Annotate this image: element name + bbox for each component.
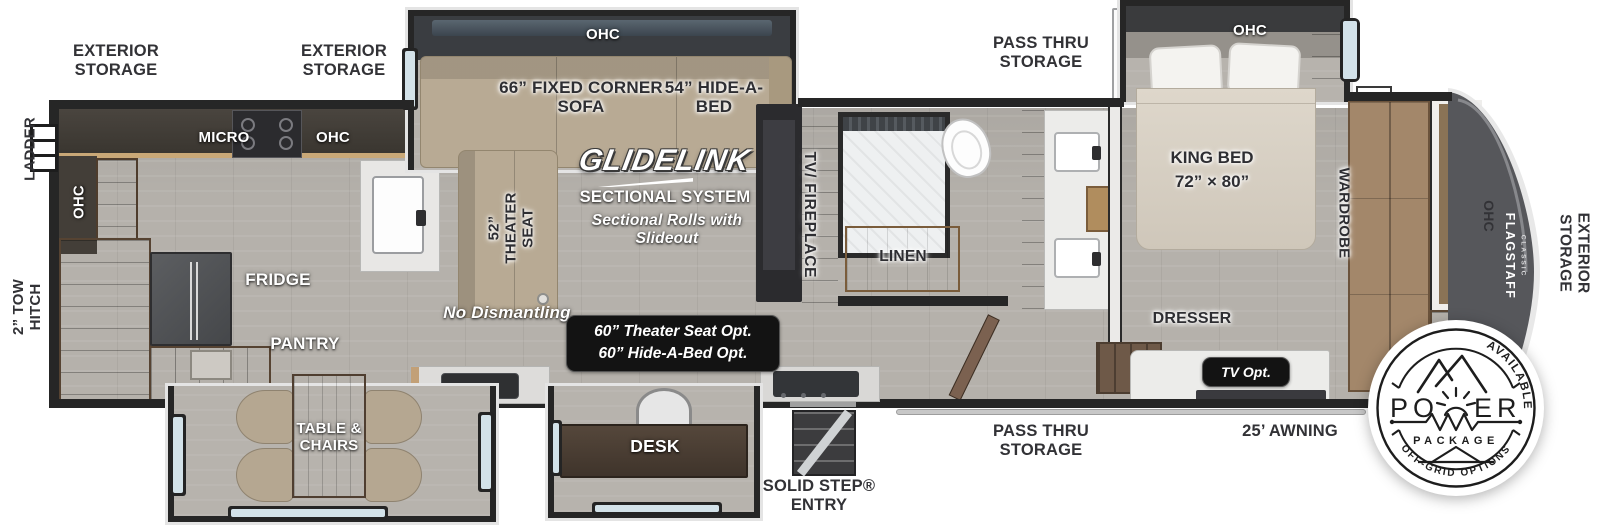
ohc-cabinet-left (96, 158, 138, 240)
dinette-bench (364, 448, 422, 502)
flagstaff-logo: FLAGSTAFF (1503, 213, 1517, 300)
vanity-shelves (1022, 110, 1044, 310)
option-line-1: 60” Theater Seat Opt. (575, 321, 771, 343)
dinette-window-left (170, 414, 186, 496)
desk-label: DESK (600, 437, 710, 457)
fridge-handle (196, 262, 198, 340)
package-text: PACKAGE (1413, 435, 1499, 447)
ohc-left-wall-label: OHC (70, 185, 87, 219)
table-chairs-label: TABLE & CHAIRS (268, 420, 390, 454)
rv-floor-plan: EXTERIOR STORAGE EXTERIOR STORAGE LADDER… (0, 0, 1600, 532)
dresser-label: DRESSER (1126, 310, 1258, 328)
step-rail (797, 409, 852, 476)
wall-top-bedroom (1346, 92, 1452, 101)
tv-fireplace-label: TV/ FIREPLACE (800, 152, 818, 279)
tv-fireplace-unit (756, 104, 802, 302)
vanity-sink (1054, 132, 1100, 172)
fridge-handle (190, 262, 192, 340)
dinette-window-bottom (228, 506, 388, 520)
ohc-sofa-label: OHC (560, 26, 646, 43)
fridge-label: FRIDGE (230, 270, 326, 289)
knob (781, 393, 786, 398)
wardrobe-label: WARDROBE (1335, 168, 1352, 259)
dinette-window-right (478, 412, 494, 492)
bath-bedroom-wall (1108, 104, 1122, 354)
faucet (1092, 252, 1101, 266)
kitchen-appliance (190, 350, 232, 380)
faucet (1092, 146, 1101, 160)
king-bed-size-label: 72” × 80” (1126, 172, 1298, 192)
faucet (416, 210, 426, 226)
exterior-storage-label-2: EXTERIOR STORAGE (284, 42, 404, 80)
bedroom-window-right (1340, 18, 1360, 82)
cooktop (773, 371, 859, 397)
toilet-seat-ring (946, 126, 987, 173)
pass-thru-top-label: PASS THRU STORAGE (976, 34, 1106, 72)
sectional-system-label: SECTIONAL SYSTEM (570, 188, 760, 207)
micro-label: MICRO (180, 129, 268, 146)
shower-top-band (843, 117, 945, 131)
line-dot-left (1390, 420, 1394, 424)
line-dot-right (1518, 420, 1522, 424)
awning-label: 25’ AWNING (1212, 422, 1368, 441)
tv-opt-label: TV Opt. (1221, 364, 1271, 380)
flagstaff-classic-label: CLASSIC (1519, 235, 1526, 278)
knob (821, 393, 826, 398)
tow-hitch-label: 2” TOW HITCH (10, 265, 44, 349)
king-bed-label-group: KING BED 72” × 80” (1126, 148, 1298, 192)
burner (279, 136, 293, 150)
ohc-kitchen-label: OHC (300, 129, 366, 146)
power-word-right: ER (1474, 393, 1522, 423)
linen-label: LINEN (850, 248, 956, 266)
bed-seam (1137, 103, 1315, 104)
theater-seat-label: 52” THEATER SEAT (485, 184, 536, 272)
solid-step-entry-label: SOLID STEP® ENTRY (744, 477, 894, 515)
exterior-storage-label-1: EXTERIOR STORAGE (56, 42, 176, 80)
ladder-label: LADDER (21, 117, 38, 181)
kitchen-sink (372, 176, 424, 254)
fixed-sofa-label: 66” FIXED CORNER SOFA (492, 78, 670, 117)
option-badge: 60” Theater Seat Opt. 60” Hide-A-Bed Opt… (566, 315, 780, 372)
knob (801, 393, 806, 398)
power-word-left: PO (1390, 393, 1439, 423)
burner (279, 118, 293, 132)
tv-opt-badge: TV Opt. (1202, 357, 1290, 387)
awning-bar (896, 409, 1366, 415)
option-line-2: 60” Hide-A-Bed Opt. (575, 343, 771, 365)
pass-thru-bottom-label: PASS THRU STORAGE (976, 422, 1106, 460)
bedside-cabinet (1312, 34, 1342, 98)
king-bed-label: KING BED (1126, 148, 1298, 168)
cabinets-left-wall (59, 238, 151, 403)
fridge (150, 252, 232, 346)
sectional-note-label: Sectional Rolls with Slideout (578, 212, 756, 247)
exterior-storage-right-label: EXTERIOR STORAGE (1556, 197, 1591, 309)
entry-steps (792, 410, 856, 476)
entry-console (760, 366, 880, 402)
vanity-sink (1054, 238, 1100, 278)
hide-a-bed-label: 54” HIDE-A-BED (648, 78, 780, 117)
wall-top-bath (798, 98, 1124, 107)
dinette-bench (236, 448, 294, 502)
ohc-bedroom-label: OHC (1212, 22, 1288, 39)
no-dismantling-label: No Dismantling (438, 303, 576, 322)
wall-bottom-left (49, 399, 170, 408)
wall-top-kitchen (49, 100, 414, 109)
glidelink-logo: GLIDELINK (569, 144, 760, 178)
bath-south-wall (838, 296, 1008, 306)
ohc-front-label: OHC (1480, 200, 1496, 232)
desk-window-left (550, 420, 562, 476)
pantry-label: PANTRY (256, 334, 354, 353)
power-package-badge: AVAILABLE WITH PO ER PACKAGE OFF-GRID OP… (1366, 318, 1546, 498)
desk-window-bottom (592, 502, 722, 515)
tv-screen (763, 120, 795, 270)
